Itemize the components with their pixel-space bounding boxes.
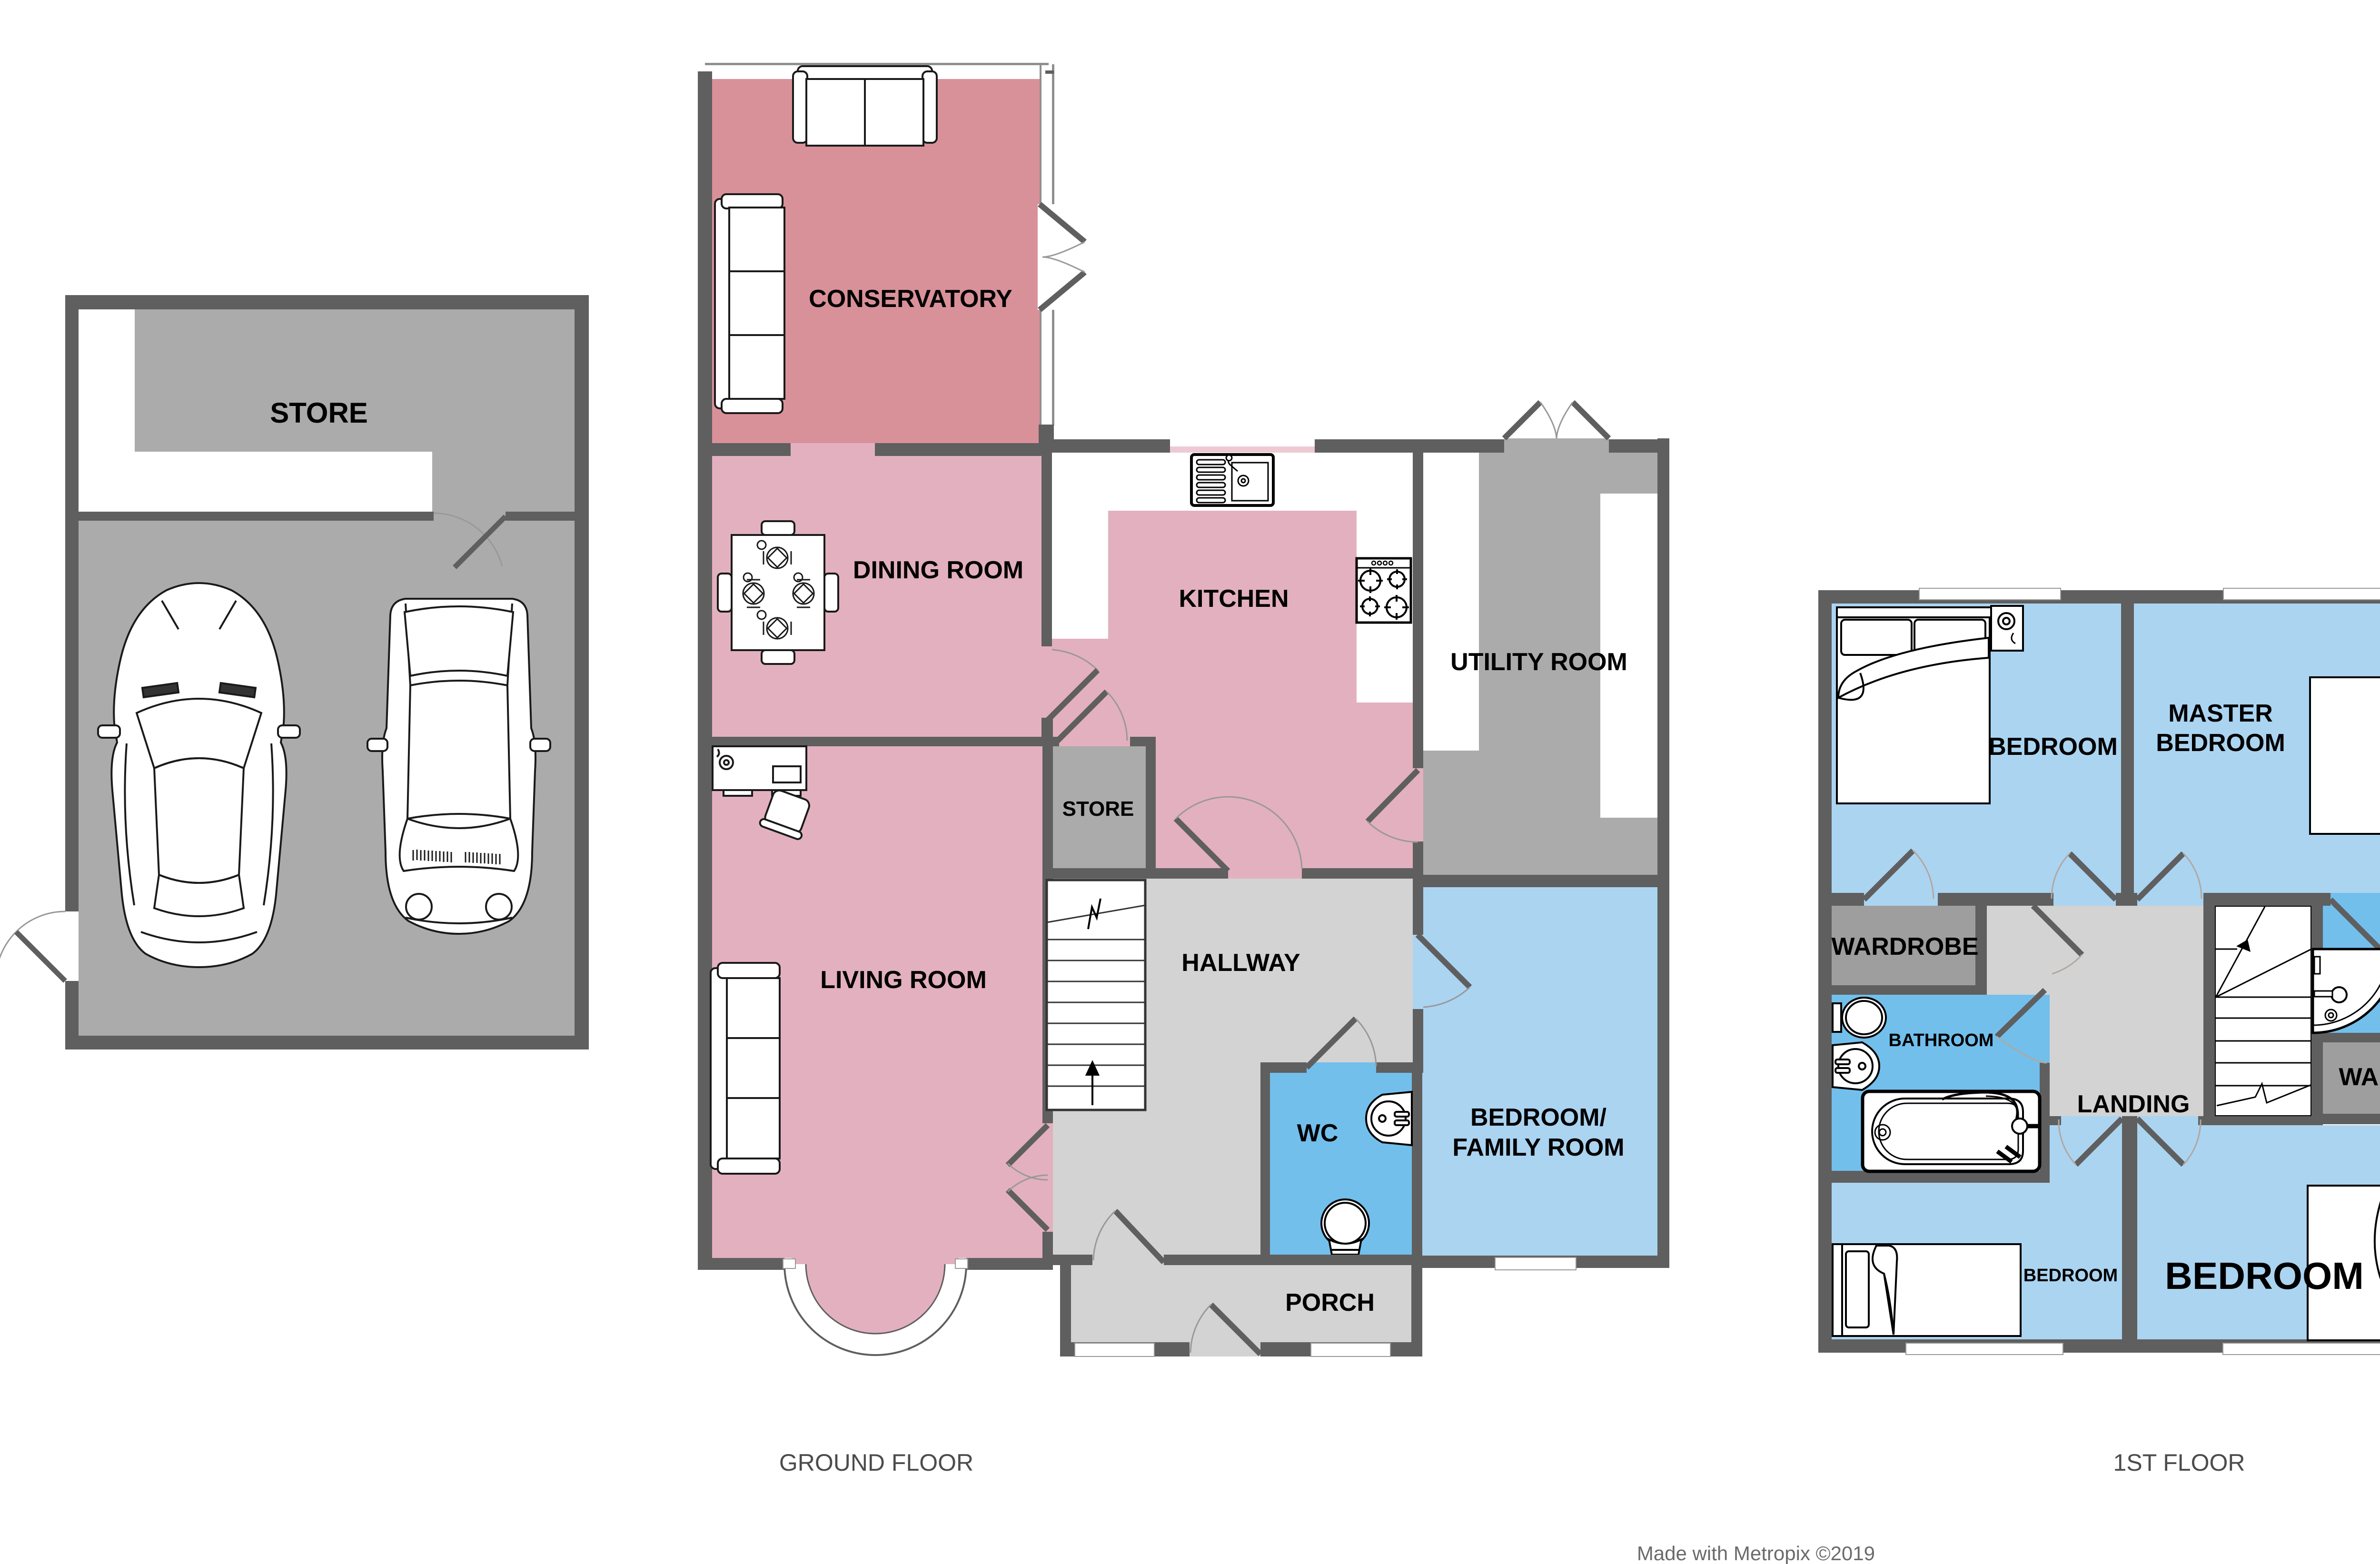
svg-text:FAMILY ROOM: FAMILY ROOM [1452,1134,1624,1161]
svg-text:BEDROOM: BEDROOM [2156,729,2285,757]
svg-text:BEDROOM/: BEDROOM/ [1470,1104,1606,1131]
svg-text:KITCHEN: KITCHEN [1179,585,1289,613]
svg-text:BEDROOM: BEDROOM [2023,1266,2118,1286]
svg-text:Made with Metropix ©2019: Made with Metropix ©2019 [1637,1542,1875,1564]
svg-text:WC: WC [1297,1119,1339,1147]
svg-text:WARDROBE: WARDROBE [1831,933,1978,960]
svg-text:STORE: STORE [270,397,368,429]
svg-text:LANDING: LANDING [2077,1090,2190,1118]
svg-text:BATHROOM: BATHROOM [1889,1030,1994,1050]
svg-text:UTILITY ROOM: UTILITY ROOM [1450,648,1627,676]
svg-text:DINING ROOM: DINING ROOM [853,556,1023,584]
svg-text:BEDROOM: BEDROOM [2165,1255,2364,1297]
svg-text:HALLWAY: HALLWAY [1181,949,1300,977]
svg-text:LIVING ROOM: LIVING ROOM [820,966,987,994]
svg-text:MASTER: MASTER [2168,700,2273,727]
svg-text:GROUND FLOOR: GROUND FLOOR [779,1449,973,1476]
svg-text:BEDROOM: BEDROOM [1988,733,2118,761]
svg-text:PORCH: PORCH [1285,1289,1375,1317]
svg-text:STORE: STORE [1062,797,1134,821]
svg-text:WARDROBE: WARDROBE [2339,1063,2380,1091]
svg-text:CONSERVATORY: CONSERVATORY [809,285,1012,313]
svg-text:1ST FLOOR: 1ST FLOOR [2113,1449,2245,1476]
